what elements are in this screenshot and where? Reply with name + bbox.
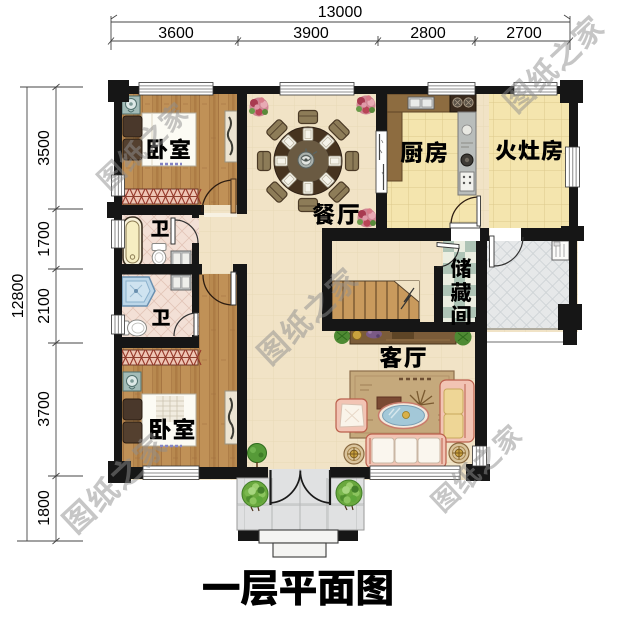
svg-text:2800: 2800 [410,25,446,42]
svg-text:12800: 12800 [10,274,27,319]
svg-text:1700: 1700 [36,221,53,257]
svg-text:3700: 3700 [36,391,53,427]
svg-text:3500: 3500 [36,130,53,166]
svg-text:3900: 3900 [293,25,329,42]
svg-text:13000: 13000 [318,4,363,21]
svg-text:1800: 1800 [36,490,53,526]
svg-text:2700: 2700 [506,25,542,42]
svg-text:2100: 2100 [36,288,53,324]
svg-text:3600: 3600 [158,25,194,42]
